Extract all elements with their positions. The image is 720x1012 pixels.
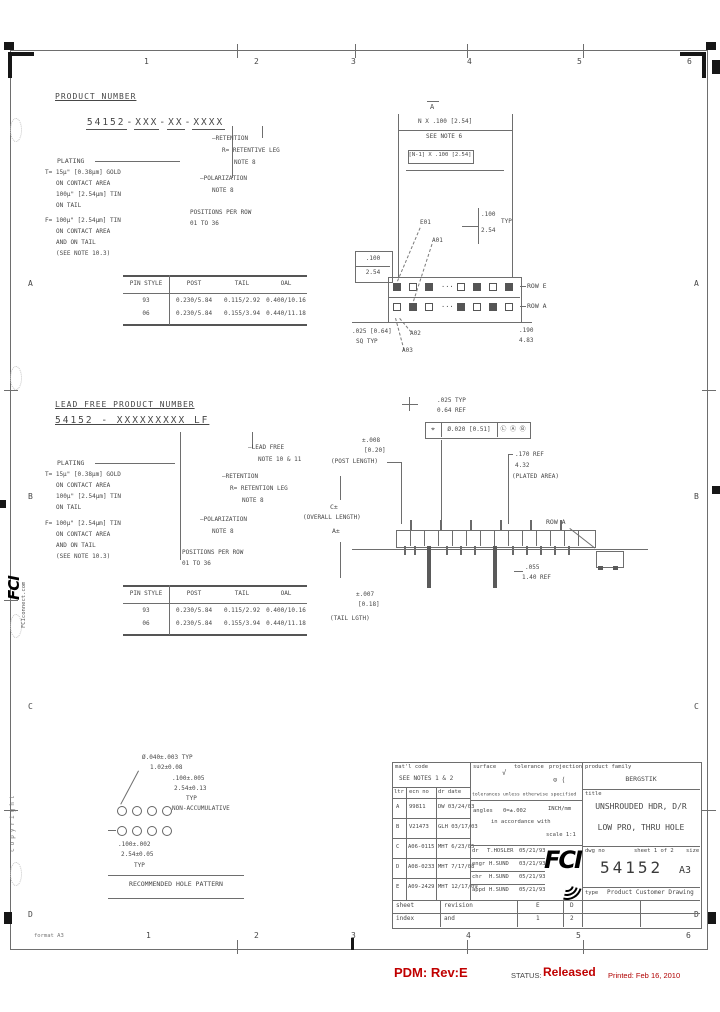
- leader-line: [441, 440, 442, 528]
- sig-label: dr: [472, 849, 479, 855]
- zone-tick: [467, 44, 468, 58]
- post-stub: [540, 546, 542, 555]
- rev-cell: A09-2429: [408, 885, 435, 891]
- retention-note: NOTE 8: [242, 498, 264, 504]
- pin-dots: ···: [441, 284, 454, 291]
- tb-line: [392, 838, 470, 839]
- plating-note: ON TAIL: [56, 505, 81, 511]
- hole-pattern-title: RECOMMENDED HOLE PATTERN: [106, 881, 246, 888]
- pin-callout: E01: [420, 220, 431, 226]
- pin: [393, 303, 401, 311]
- pn-group: 54152: [86, 117, 127, 130]
- tb-divider: [582, 762, 583, 927]
- positions-note: 01 TO 36: [182, 561, 211, 567]
- post-stub: [530, 520, 532, 530]
- pin: [409, 303, 417, 311]
- product-number-title: PRODUCT NUMBER: [55, 93, 136, 101]
- table-cell: 06: [123, 621, 169, 627]
- angles-label: angles: [473, 809, 493, 815]
- rev-header: ecn no: [409, 790, 429, 796]
- body-tooth: [508, 530, 509, 546]
- dim-line: [478, 208, 479, 244]
- strip-cell: 2: [570, 916, 574, 922]
- plating-note: ON CONTACT AREA: [56, 532, 110, 538]
- rev-cell: V21473: [409, 825, 429, 831]
- body-tooth: [452, 530, 453, 546]
- tb-line: [470, 871, 545, 872]
- gdt-position-symbol: ⌖: [425, 426, 441, 433]
- strip-cell: E: [536, 903, 540, 909]
- tb-divider: [392, 913, 700, 914]
- sheet-label: sheet 1 of 2: [634, 849, 674, 855]
- strip-cell: revision: [444, 903, 473, 909]
- polarization-note: NOTE 8: [212, 188, 234, 194]
- body-tooth: [564, 530, 565, 546]
- table-line: [123, 634, 307, 636]
- pin-callout: A03: [402, 348, 413, 354]
- body-tooth: [578, 530, 579, 546]
- matl-code-label: mat'l code: [395, 765, 428, 771]
- tb-line: [582, 789, 700, 790]
- post-stub: [500, 520, 502, 530]
- body-tooth: [494, 530, 495, 546]
- table-cell: 93: [123, 298, 169, 304]
- retention-note: NOTE 8: [234, 160, 256, 166]
- zone-tick: [4, 600, 18, 601]
- leader-line: [387, 462, 401, 463]
- table-line: [123, 275, 307, 277]
- table-header-cell: PIN STYLE: [123, 281, 169, 287]
- rev-cell: A08-0233: [408, 865, 435, 871]
- tb-line: [563, 900, 564, 927]
- table-cell: 0.155/3.94: [219, 621, 265, 627]
- plating-note: AND ON TAIL: [56, 240, 96, 246]
- datum-overline: [427, 101, 439, 102]
- dim-label: 4.32: [515, 463, 529, 469]
- pn-group: XXXX: [192, 117, 225, 130]
- dim-label: .025 TYP: [437, 398, 466, 404]
- dim-label: (POST LENGTH): [331, 459, 378, 465]
- board-line: [352, 549, 648, 550]
- pin-dots: ···: [441, 304, 454, 311]
- leader-cross: [409, 397, 410, 411]
- matl-code-value: SEE NOTES 1 & 2: [399, 776, 453, 782]
- tb-line: [470, 884, 545, 885]
- pin-callout: A01: [432, 238, 443, 244]
- table-cell: 0.440/11.18: [265, 621, 307, 627]
- leader-line: [508, 454, 509, 524]
- rev-header: ltr: [394, 790, 404, 796]
- leader-line: [108, 830, 116, 831]
- plating-note: F= 100μ" [2.54μm] TIN: [45, 521, 121, 527]
- zone-bottom: 3: [351, 932, 356, 940]
- strip-cell: D: [570, 903, 574, 909]
- leader-line: [262, 126, 263, 138]
- post-stub: [554, 546, 556, 555]
- zone-right: B: [694, 493, 699, 501]
- baseline: [352, 322, 532, 323]
- plating-note: (SEE NOTE 10.3): [56, 554, 110, 560]
- dwg-no-label: dwg no: [585, 849, 605, 855]
- strip-cell: sheet: [396, 903, 414, 909]
- pin: [489, 283, 497, 291]
- title-label: title: [585, 792, 602, 798]
- extension-line: [512, 114, 513, 277]
- drawing-sheet: 1 2 3 4 5 6 1 2 3 4 5 6 A B C D A B C D …: [0, 0, 720, 1012]
- sig-label: engr: [472, 862, 485, 868]
- dim-line: [406, 170, 504, 171]
- pn-group: XX: [167, 117, 184, 130]
- units-label: INCH/mm: [548, 807, 571, 813]
- leader-line: [508, 454, 513, 455]
- dim-note: SEE NOTE 6: [426, 134, 462, 140]
- table-cell: 0.230/5.84: [169, 608, 219, 614]
- dim-label: 4.83: [519, 338, 533, 344]
- hole-dim: Ø.040±.003 TYP: [142, 755, 193, 761]
- tb-line: [392, 878, 470, 879]
- zone-tick: [4, 390, 18, 391]
- leadfree-title: LEAD FREE PRODUCT NUMBER: [55, 401, 195, 409]
- dim-line: [340, 542, 341, 578]
- edge-mark: [712, 486, 720, 494]
- sig-name: H.SUND: [489, 888, 509, 894]
- zone-right: C: [694, 703, 699, 711]
- product-number: 54152-XXX-XX-XXXX: [55, 108, 225, 137]
- post-stub: [460, 546, 462, 555]
- body-tooth: [466, 530, 467, 546]
- positions-note: 01 TO 36: [190, 221, 219, 227]
- row-label: ROW A: [546, 519, 566, 526]
- hole-dim: 2.54±0.13: [174, 786, 207, 792]
- plating-label: PLATING: [57, 158, 84, 165]
- tb-line: [582, 846, 700, 847]
- dim-line: [462, 226, 478, 227]
- post-stub: [568, 546, 570, 555]
- tb-line: [392, 858, 470, 859]
- tb-line: [470, 858, 545, 859]
- hole-dim: NON-ACCUMULATIVE: [172, 806, 230, 812]
- sig-name: H.SUND: [489, 862, 509, 868]
- tb-line: [392, 787, 470, 788]
- zone-right: A: [694, 280, 699, 288]
- leader-line: [95, 463, 175, 464]
- dim-label: A±: [332, 528, 340, 535]
- pin: [457, 283, 465, 291]
- leadfree-note: —LEAD FREE: [248, 445, 284, 451]
- zone-top: 6: [687, 58, 692, 66]
- connector-row-divider: [388, 297, 520, 298]
- dim-label: ±.007: [356, 592, 374, 598]
- row-label: ROW E: [527, 283, 547, 290]
- title-rule: [108, 875, 244, 876]
- pitch-label: 2.54: [356, 270, 390, 276]
- sig-date: 05/21/93: [519, 875, 546, 881]
- end-view-foot: [613, 566, 618, 570]
- rev-cell: MHT 6/23/05: [438, 845, 474, 851]
- zone-tick: [467, 940, 468, 954]
- post-stub: [474, 546, 476, 555]
- strip-cell: index: [396, 916, 414, 922]
- zone-left: C: [28, 703, 33, 711]
- footer-printed-date: Printed: Feb 16, 2010: [608, 972, 680, 980]
- rev-cell: A: [396, 805, 399, 811]
- zone-bottom: 6: [686, 932, 691, 940]
- sig-name: T.HOSLER: [487, 849, 514, 855]
- zone-tick: [237, 44, 238, 58]
- zone-bottom: 1: [146, 932, 151, 940]
- plating-note: AND ON TAIL: [56, 543, 96, 549]
- pitch-label: TYP: [501, 219, 512, 225]
- type-label: type: [585, 891, 598, 897]
- zone-tick: [355, 44, 356, 58]
- table-cell: 0.230/5.84: [169, 298, 219, 304]
- dim-label: [0.18]: [358, 602, 380, 608]
- dim-line: [340, 476, 341, 500]
- table-cell: 0.115/2.92: [219, 298, 265, 304]
- dim-label: SQ TYP: [356, 339, 378, 345]
- hole-dim: TYP: [134, 863, 145, 869]
- rev-cell: B: [396, 825, 399, 831]
- post-stub: [440, 520, 442, 530]
- zone-top: 1: [144, 58, 149, 66]
- plating-note: (SEE NOTE 10.3): [56, 251, 110, 257]
- retention-note: —RETENTION: [212, 136, 248, 142]
- gdt-tolerance: Ø.020 [0.51]: [441, 427, 497, 433]
- row-label: ROW A: [527, 303, 547, 310]
- tolerance-label: tolerance: [514, 765, 544, 771]
- zone-left: D: [28, 911, 33, 919]
- drawing-title-line: LOW PRO, THRU HOLE: [582, 824, 700, 832]
- post-stub: [414, 546, 416, 555]
- pin: [457, 303, 465, 311]
- zone-left: B: [28, 493, 33, 501]
- rev-cell: E: [396, 885, 399, 891]
- punch-hole: [10, 862, 22, 886]
- dim-label: [N-1] X .100 [2.54]: [408, 153, 472, 159]
- plating-note: ON TAIL: [56, 203, 81, 209]
- leader-line: [401, 462, 402, 524]
- table-cell: 0.440/11.18: [265, 311, 307, 317]
- retention-note: R= RETENTION LEG: [230, 486, 288, 492]
- tolerance-note: tolerances unless otherwise specified: [472, 793, 576, 798]
- rev-cell: C: [396, 845, 399, 851]
- zone-tick: [237, 940, 238, 954]
- dim-line: [398, 130, 512, 131]
- body-tooth: [550, 530, 551, 546]
- zone-tick: [702, 810, 716, 811]
- edge-mark: [708, 912, 716, 924]
- body-tooth: [522, 530, 523, 546]
- pin: [489, 303, 497, 311]
- table-line: [123, 585, 307, 587]
- pn-dash: -: [159, 117, 167, 128]
- table-cell: 06: [123, 311, 169, 317]
- dim-label: C±: [330, 504, 338, 511]
- hole-circle: [147, 806, 157, 816]
- sig-label: appd: [472, 888, 485, 894]
- tb-line: [440, 900, 441, 927]
- tb-line: [640, 900, 641, 927]
- dim-label: (OVERALL LENGTH): [303, 515, 361, 521]
- rev-cell: GLH 03/17/03: [438, 825, 478, 831]
- type-value: Product Customer Drawing: [607, 890, 694, 896]
- sig-label: chr: [472, 875, 482, 881]
- plating-note: ON CONTACT AREA: [56, 181, 110, 187]
- table-cell: 0.230/5.84: [169, 621, 219, 627]
- table-header-cell: POST: [169, 591, 219, 597]
- footer-pdm-rev: PDM: Rev:E: [394, 966, 468, 979]
- format-label: format A3: [34, 934, 64, 940]
- corner-mark: [8, 52, 12, 78]
- plating-note: T= 15μ" [0.38μm] GOLD: [45, 472, 121, 478]
- polarization-note: —POLARIZATION: [200, 176, 247, 182]
- dim-label: (PLATED AREA): [512, 474, 559, 480]
- pin: [425, 303, 433, 311]
- zone-bottom: 4: [466, 932, 471, 940]
- table-header-cell: POST: [169, 281, 219, 287]
- footer-status-value: Released: [543, 966, 596, 978]
- retention-note: R= RETENTIVE LEG: [222, 148, 280, 154]
- edge-mark: [4, 912, 12, 924]
- pitch-label: .100: [481, 212, 495, 218]
- pin: [505, 283, 513, 291]
- leader-line: [514, 571, 523, 572]
- drawing-title-line: UNSHROUDED HDR, D/R: [582, 803, 700, 811]
- product-family-label: product family: [585, 765, 631, 771]
- hole-circle: [162, 826, 172, 836]
- body-tooth: [480, 530, 481, 546]
- dim-label: 1.40 REF: [522, 575, 551, 581]
- corner-mark: [702, 52, 706, 78]
- product-family: BERGSTIK: [582, 776, 700, 783]
- retention-note: —RETENTION: [222, 474, 258, 480]
- surface-symbol: √: [502, 770, 506, 777]
- sig-name: H.SUND: [489, 875, 509, 881]
- table-cell: 0.400/10.16: [265, 298, 307, 304]
- edge-mark: [712, 60, 720, 74]
- projection-label: projection: [549, 765, 582, 771]
- rev-cell: D: [396, 865, 399, 871]
- plating-note: F= 100μ" [2.54μm] TIN: [45, 218, 121, 224]
- hole-circle: [162, 806, 172, 816]
- table-header-cell: TAIL: [219, 281, 265, 287]
- zone-left: A: [28, 280, 33, 288]
- sig-date: 03/21/93: [519, 862, 546, 868]
- pin: [473, 283, 481, 291]
- zone-top: 5: [577, 58, 582, 66]
- hole-dim: 1.02±0.08: [150, 765, 183, 771]
- pin-callout: A02: [410, 331, 421, 337]
- drawing-number: 54152: [600, 860, 663, 876]
- end-view-foot: [598, 566, 603, 570]
- post-stub: [512, 546, 514, 555]
- plating-note: ON CONTACT AREA: [56, 483, 110, 489]
- table-cell: 0.230/5.84: [169, 311, 219, 317]
- extension-line: [398, 114, 399, 277]
- table-header-cell: OAL: [265, 281, 307, 287]
- table-cell: 0.115/2.92: [219, 608, 265, 614]
- rev-header: dr date: [438, 790, 461, 796]
- hole-dim: .100±.005: [172, 776, 205, 782]
- dim-label: 0.64 REF: [437, 408, 466, 414]
- table-line: [123, 293, 307, 294]
- size-label: size: [686, 849, 699, 855]
- edge-mark: [0, 500, 6, 508]
- hole-dim: TYP: [186, 796, 197, 802]
- pitch-label: 2.54: [481, 228, 495, 234]
- pin: [393, 283, 401, 291]
- tb-line: [436, 787, 437, 900]
- projection-symbol: ⊙ ⟨: [553, 777, 566, 784]
- tb-line: [392, 798, 470, 799]
- table-header-cell: PIN STYLE: [123, 591, 169, 597]
- zone-tick: [583, 940, 584, 954]
- tb-line: [392, 818, 470, 819]
- leader-line: [520, 306, 526, 307]
- pitch-box-divider: [356, 266, 390, 267]
- leader-line: [520, 286, 526, 287]
- dim-label: (TAIL LGTH): [330, 616, 370, 622]
- plating-note: 100μ" [2.54μm] TIN: [56, 494, 121, 500]
- leadfree-note: NOTE 10 & 11: [258, 457, 301, 463]
- polarization-note: —POLARIZATION: [200, 517, 247, 523]
- zone-tick: [583, 44, 584, 58]
- dim-label: ±.008: [362, 438, 380, 444]
- rev-cell: 99811: [409, 805, 426, 811]
- zone-top: 2: [254, 58, 259, 66]
- fci-logo: FCI: [544, 846, 582, 898]
- plating-note: T= 15μ" [0.38μm] GOLD: [45, 170, 121, 176]
- pin: [425, 283, 433, 291]
- dim-label: .190: [519, 328, 533, 334]
- surface-label: surface: [473, 765, 496, 771]
- plating-note: ON CONTACT AREA: [56, 229, 110, 235]
- plating-label: PLATING: [57, 460, 84, 467]
- table-cell: 0.400/10.16: [265, 608, 307, 614]
- body-tooth: [410, 530, 411, 546]
- side-logo-subtext: FCIconnect.com: [22, 538, 28, 628]
- gdt-datum-refs: Ⓛ Ⓐ Ⓑ: [497, 427, 529, 433]
- pitch-label: .100: [356, 256, 390, 262]
- tb-line: [406, 787, 407, 900]
- tb-line: [470, 800, 582, 801]
- leader-line: [95, 161, 180, 162]
- datum-label: A: [430, 104, 434, 111]
- dim-label: .055: [525, 565, 539, 571]
- table-line: [123, 603, 307, 604]
- zone-bottom: 5: [576, 932, 581, 940]
- hole-circle: [117, 806, 127, 816]
- hole-circle: [117, 826, 127, 836]
- edge-mark: [4, 42, 14, 50]
- dim-label: .025 [0.64]: [352, 329, 392, 335]
- body-tooth: [536, 530, 537, 546]
- rev-cell: MHT 7/17/08: [438, 865, 474, 871]
- accordance-note: in accordance with: [491, 820, 551, 826]
- table-header-cell: OAL: [265, 591, 307, 597]
- post-stub: [410, 520, 412, 530]
- post-stub: [404, 546, 406, 555]
- pin: [505, 303, 513, 311]
- dim-label: .170 REF: [515, 452, 544, 458]
- table-cell: 93: [123, 608, 169, 614]
- polarization-note: NOTE 8: [212, 529, 234, 535]
- edge-mark: [706, 42, 716, 50]
- leader-cross: [402, 404, 418, 405]
- punch-hole: [10, 118, 22, 142]
- post: [493, 546, 497, 588]
- rev-cell: DW 03/24/03: [438, 805, 474, 811]
